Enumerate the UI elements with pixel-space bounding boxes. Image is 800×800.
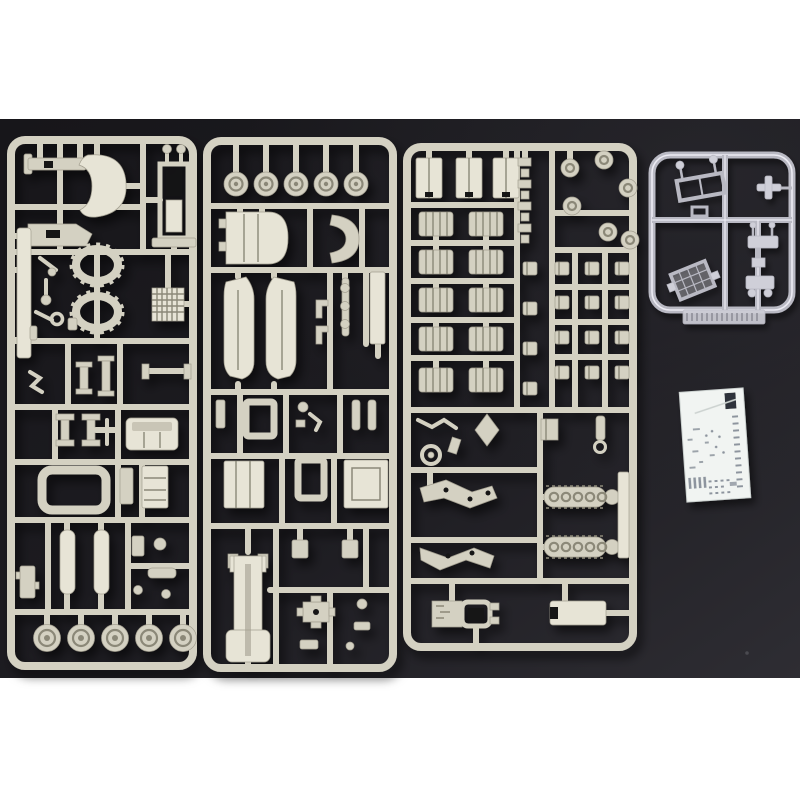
part-right-plate <box>618 472 629 558</box>
photo-canvas <box>0 0 800 800</box>
part-edge-plate <box>370 272 385 344</box>
decal-sheet <box>679 388 751 502</box>
part-tank-halves <box>416 158 519 198</box>
part-side-plate <box>17 228 31 358</box>
part-embossed-tab <box>683 310 765 324</box>
part-chassis-plate-2 <box>266 277 296 379</box>
part-chassis-box-right <box>550 601 606 625</box>
part-knobbed-rod <box>341 278 350 336</box>
part-cab <box>126 418 178 450</box>
part-small-boxes <box>120 466 168 508</box>
part-chassis-plate-1 <box>224 277 254 379</box>
dust-speck <box>745 651 749 655</box>
decal-small-block <box>730 482 737 486</box>
photo-model-kit-sprues <box>0 0 800 800</box>
part-radiator-grille <box>152 288 184 321</box>
part-engine-hood <box>219 212 288 264</box>
